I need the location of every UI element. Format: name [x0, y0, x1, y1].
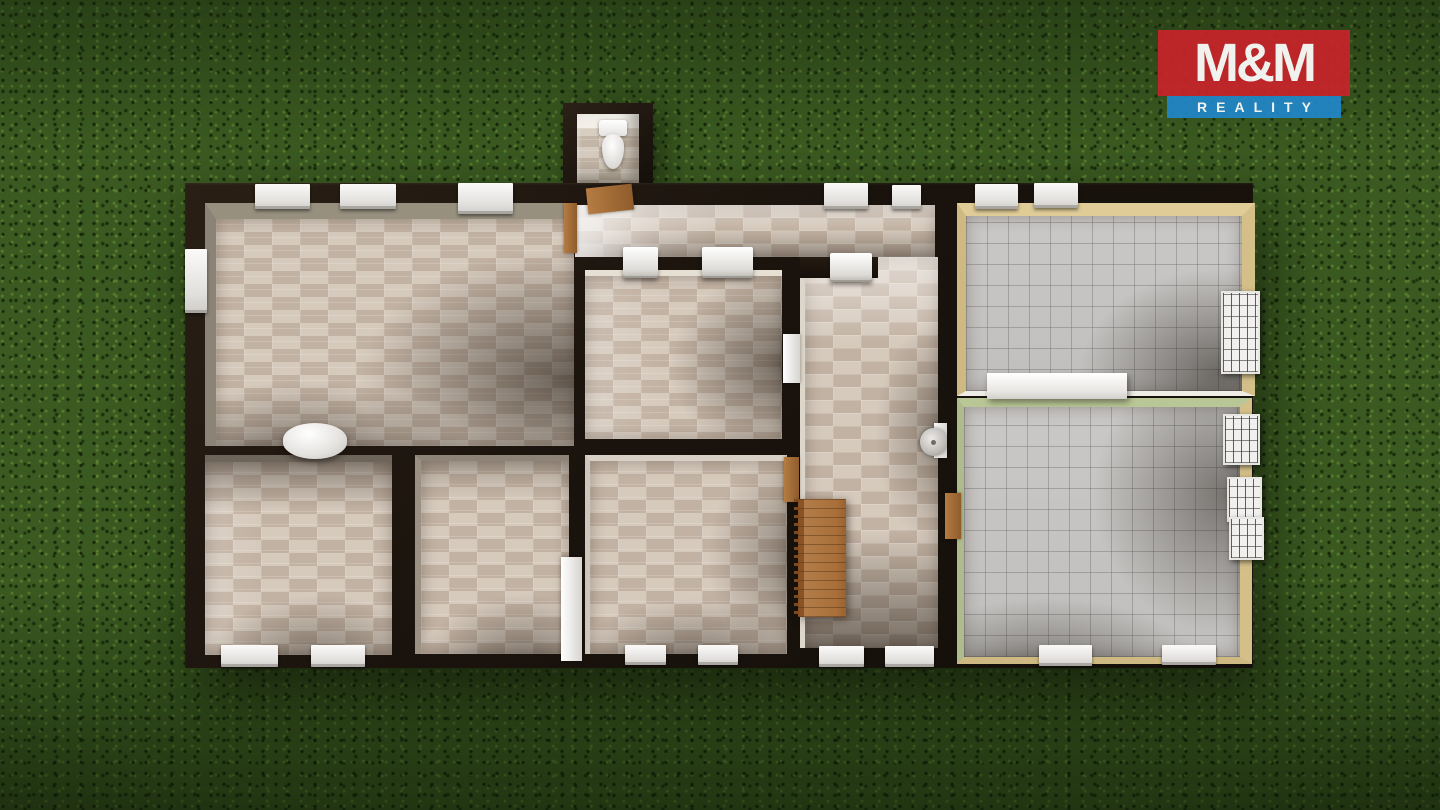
- room-shadow: [421, 461, 569, 654]
- room-top-right: [957, 203, 1255, 396]
- room-shadow: [216, 219, 574, 446]
- room-shadow: [966, 216, 1242, 391]
- window: [185, 249, 207, 313]
- room-top-left: [205, 203, 574, 446]
- room-shadow: [964, 407, 1240, 657]
- window: [885, 646, 934, 667]
- room-bottom-left-2: [415, 455, 569, 654]
- wc-door: [586, 184, 634, 215]
- casement-window: [1229, 517, 1264, 560]
- white-door-bottom: [561, 557, 582, 661]
- hallway-door-frame: [564, 203, 577, 253]
- logo-subtitle: REALITY: [1167, 96, 1341, 118]
- room-bottom-left-1: [205, 455, 392, 655]
- stove-cylinder: [283, 423, 347, 459]
- room-center: [585, 270, 782, 439]
- radiator-icon: [830, 253, 872, 282]
- white-sideboard: [987, 373, 1127, 399]
- window: [824, 183, 868, 209]
- window: [892, 185, 921, 209]
- staircase: [798, 499, 846, 617]
- room-shadow: [585, 276, 782, 439]
- window: [458, 183, 513, 214]
- brand-logo: M&M REALITY: [1158, 30, 1350, 118]
- room-shadow: [205, 462, 392, 655]
- hall-to-right-room-door: [945, 493, 961, 539]
- radiator-icon: [702, 247, 753, 278]
- casement-window: [1221, 291, 1260, 374]
- window: [1039, 645, 1092, 666]
- window: [221, 645, 278, 667]
- grass-background: M&M REALITY: [0, 0, 1440, 810]
- window: [698, 645, 738, 665]
- casement-window: [1227, 477, 1262, 522]
- room-bottom-right: [957, 398, 1252, 664]
- window: [625, 645, 666, 665]
- window: [975, 184, 1018, 209]
- white-door-center: [783, 334, 800, 383]
- room-shadow: [590, 461, 787, 654]
- window: [819, 646, 864, 667]
- casement-window: [1223, 414, 1260, 465]
- room-bottom-center: [585, 455, 787, 654]
- radiator-icon: [623, 247, 658, 278]
- window: [1162, 645, 1216, 665]
- logo-wordmark: M&M: [1158, 30, 1350, 96]
- window: [1034, 183, 1078, 208]
- wash-basin-icon: [920, 428, 947, 456]
- window: [255, 184, 310, 209]
- window: [340, 184, 396, 209]
- hall-to-room-door: [784, 457, 799, 502]
- window: [311, 645, 365, 667]
